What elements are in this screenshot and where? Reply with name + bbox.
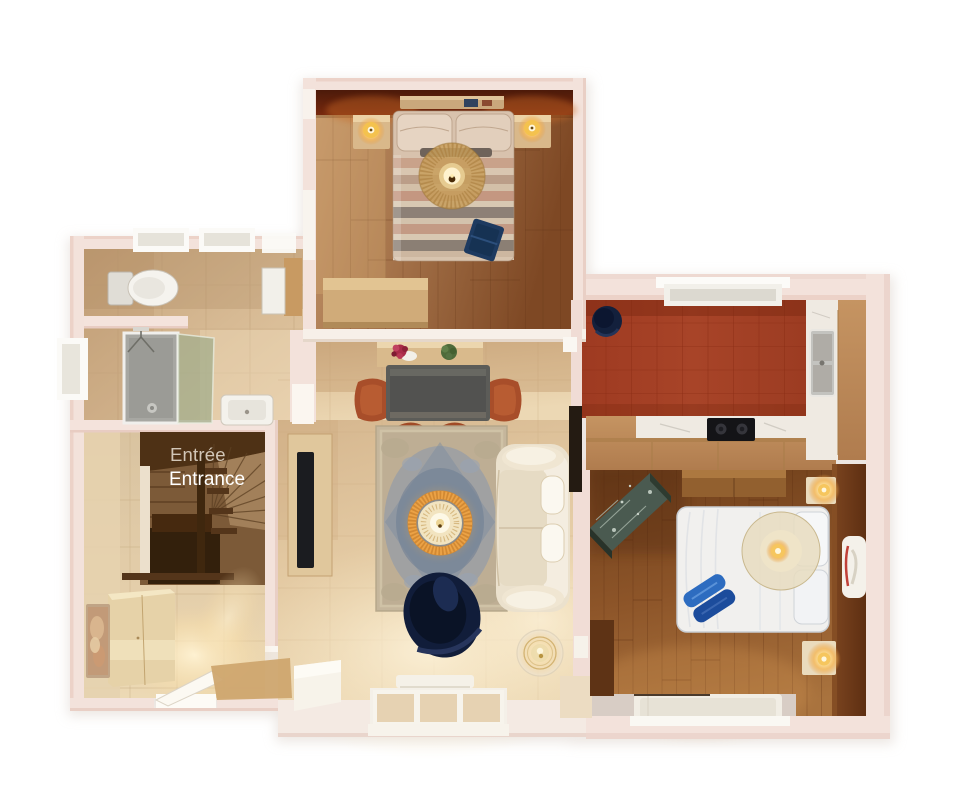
svg-text:Entrée: Entrée <box>170 444 226 465</box>
svg-text:Entrance: Entrance <box>169 469 245 490</box>
